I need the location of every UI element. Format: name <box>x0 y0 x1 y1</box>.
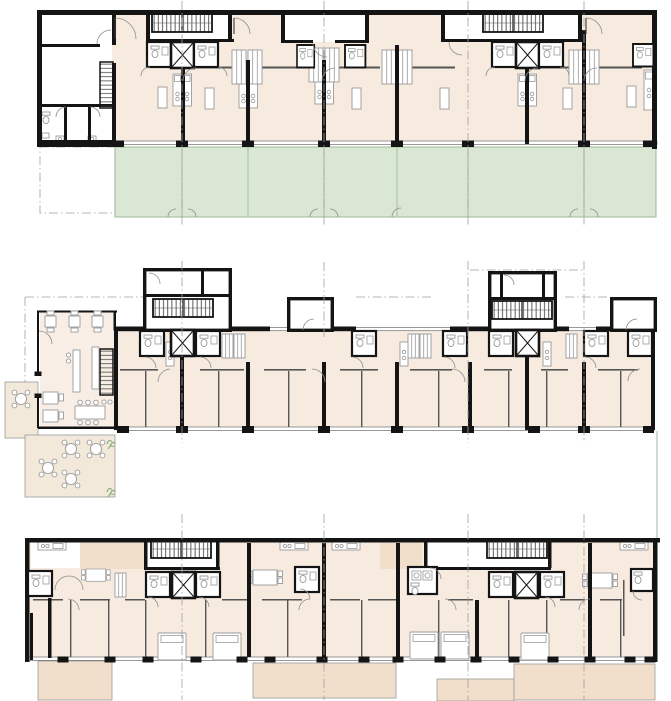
plan-middle <box>5 261 657 575</box>
loggia-box-2 <box>612 299 656 331</box>
bathroom-pod <box>196 572 220 597</box>
elevator <box>516 330 539 356</box>
floor-plan-sheet <box>0 0 671 701</box>
balcony <box>38 661 112 700</box>
stair-tower-2 <box>490 273 556 331</box>
loggia-box-1 <box>289 299 333 331</box>
cafe-long-table <box>75 406 105 419</box>
balcony <box>514 664 655 700</box>
cafe-table <box>43 410 58 422</box>
wardrobe <box>115 573 126 597</box>
bathroom-pod <box>194 42 218 67</box>
elevator <box>516 42 539 68</box>
south-facade-windows <box>28 657 655 660</box>
cafe-bar <box>73 350 80 392</box>
staircase <box>492 301 552 319</box>
loggia-room <box>380 543 422 569</box>
staircase <box>151 540 211 558</box>
balcony <box>437 679 514 701</box>
stair-core-1 <box>147 14 218 68</box>
staircase <box>153 299 213 317</box>
plan-top <box>37 1 657 225</box>
laundry-pod <box>408 567 437 595</box>
cafe-table <box>92 311 103 332</box>
bathroom-pod <box>539 42 563 67</box>
south-facade-windows <box>117 427 654 430</box>
floor-plans-drawing <box>0 0 671 701</box>
bathroom-pod <box>631 569 653 591</box>
plan-bottom <box>25 514 660 701</box>
stair-tower-1 <box>145 270 231 331</box>
balconies <box>38 661 655 701</box>
staircase <box>483 14 543 32</box>
garden-facade-windows <box>112 141 657 144</box>
terrace-extent-dashed <box>40 147 115 213</box>
bathroom-pod <box>492 42 516 67</box>
elevator <box>171 42 194 68</box>
loggia-room <box>80 543 144 569</box>
common-room <box>283 13 367 42</box>
bathroom-pod <box>540 572 564 597</box>
cafe-shelf <box>92 347 99 389</box>
staircase <box>487 540 547 558</box>
cafe-table <box>43 392 58 404</box>
outdoor-terrace-upper <box>5 382 38 438</box>
garden-terraces <box>115 147 656 217</box>
elevator <box>172 572 195 598</box>
cafe-table <box>45 311 56 332</box>
bathroom-pod <box>489 572 513 597</box>
bathroom-pod <box>146 572 170 597</box>
elevator <box>171 330 194 356</box>
bathroom-pod <box>147 42 171 67</box>
balcony <box>253 663 396 698</box>
service-staircase <box>100 62 113 108</box>
cafe-staircase <box>100 349 113 395</box>
cafe-table <box>69 311 80 332</box>
elevator <box>515 572 538 598</box>
